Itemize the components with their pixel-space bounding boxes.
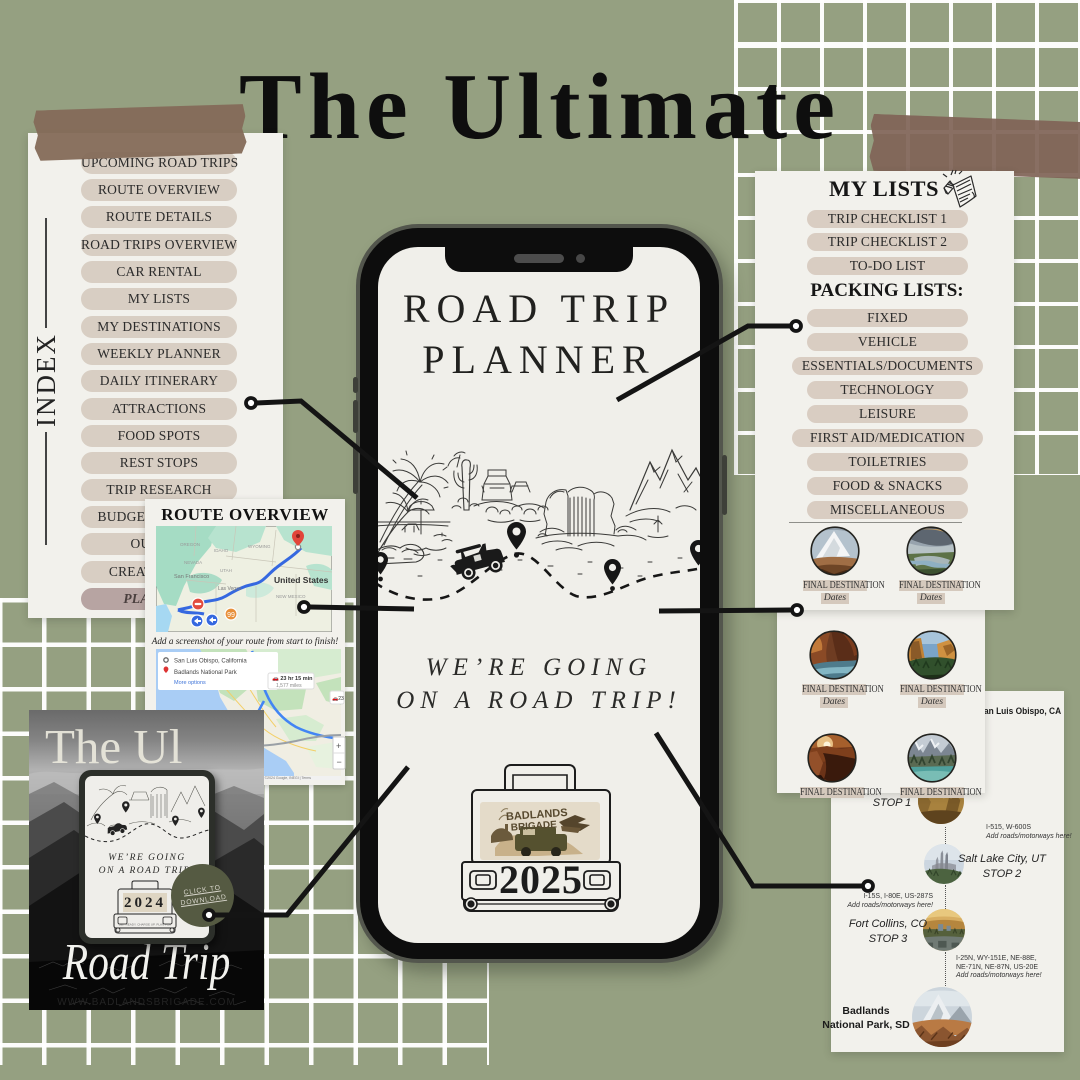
svg-text:More options: More options [174,680,206,686]
svg-text:99: 99 [227,612,235,619]
svg-text:1,577 miles: 1,577 miles [276,683,302,689]
svg-text:WYOMING: WYOMING [248,544,271,549]
svg-text:NEVADA: NEVADA [184,560,202,565]
svg-text:San Francisco: San Francisco [174,574,209,580]
svg-text:2024: 2024 [124,895,166,911]
svg-text:🚗 23 hr 15 min: 🚗 23 hr 15 min [272,676,313,682]
svg-text:🚗23: 🚗23 [332,696,344,702]
svg-text:Las Vegas: Las Vegas [218,586,242,592]
svg-text:San Luis Obispo, California: San Luis Obispo, California [174,659,247,665]
svg-text:Badlands National Park: Badlands National Park [174,670,238,676]
svg-text:United States: United States [274,575,329,585]
svg-text:UTAH: UTAH [220,568,232,573]
svg-text:GET READY. CHARGE UP. PLAN FOR: GET READY. CHARGE UP. PLAN FOR [119,923,173,927]
svg-text:NEW MEXICO: NEW MEXICO [276,594,306,599]
svg-text:+: + [336,741,341,751]
svg-text:−: − [337,757,342,767]
svg-text:2025: 2025 [499,857,583,902]
svg-text:OREGON: OREGON [180,542,200,547]
svg-text:IDAHO: IDAHO [214,548,229,553]
